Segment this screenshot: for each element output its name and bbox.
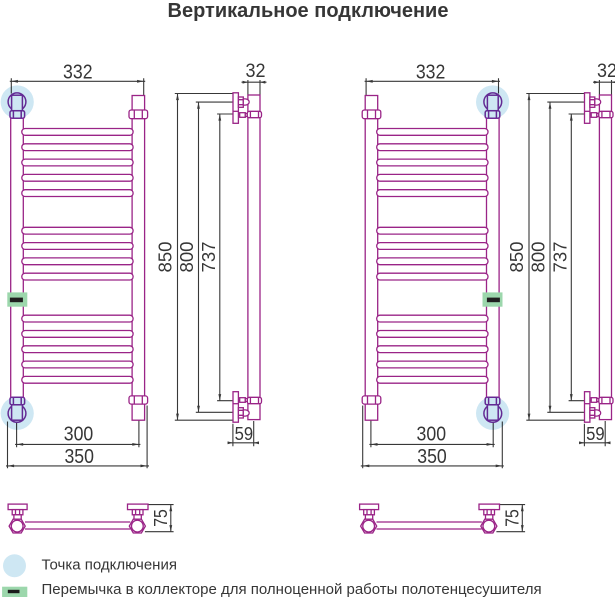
svg-text:Вертикальное подключение: Вертикальное подключение bbox=[168, 0, 449, 22]
svg-text:Точка подключения: Точка подключения bbox=[42, 557, 177, 574]
svg-text:Перемычка в коллекторе для пол: Перемычка в коллекторе для полноценной р… bbox=[42, 581, 542, 598]
